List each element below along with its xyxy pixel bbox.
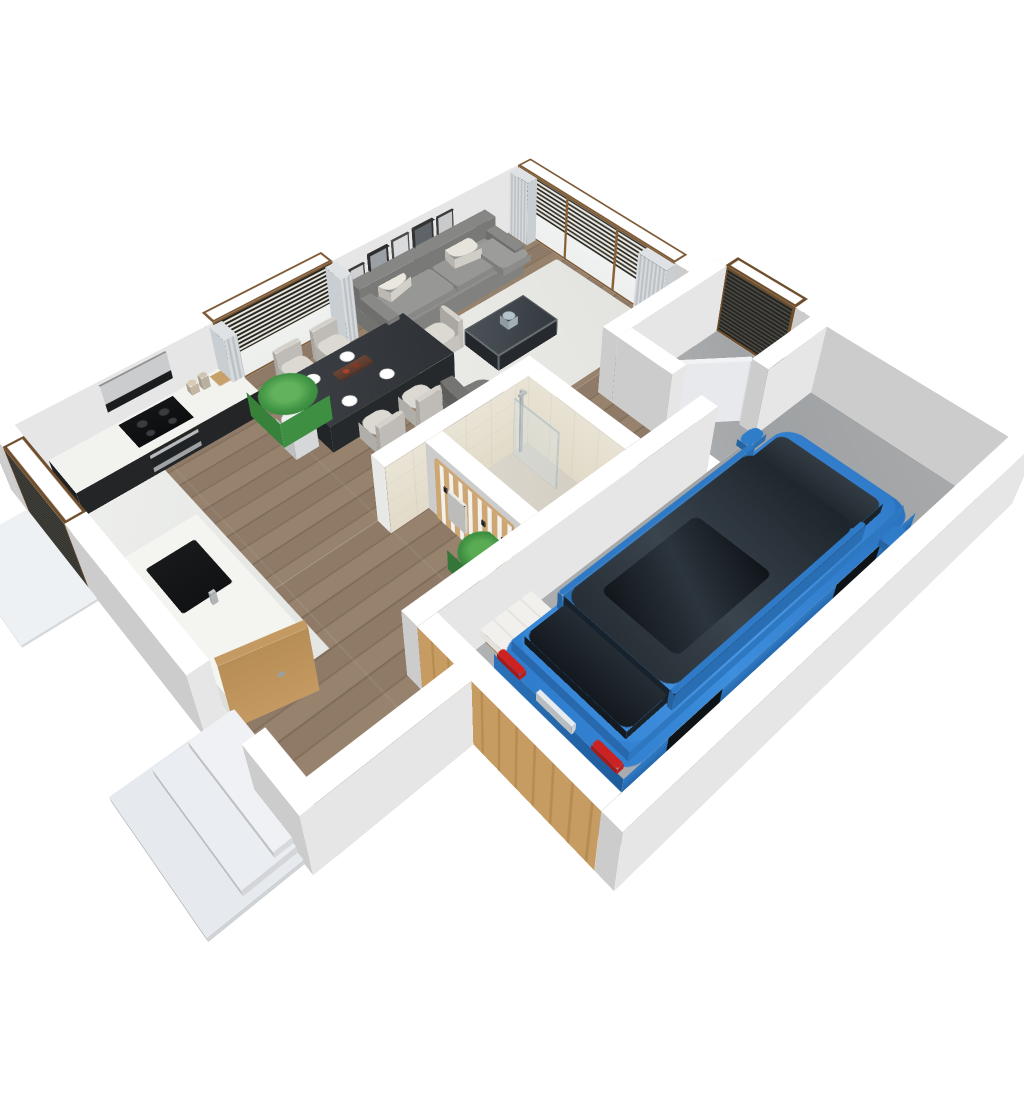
scene xyxy=(11,209,1024,1084)
floorplan-3d-view xyxy=(0,0,1024,1024)
